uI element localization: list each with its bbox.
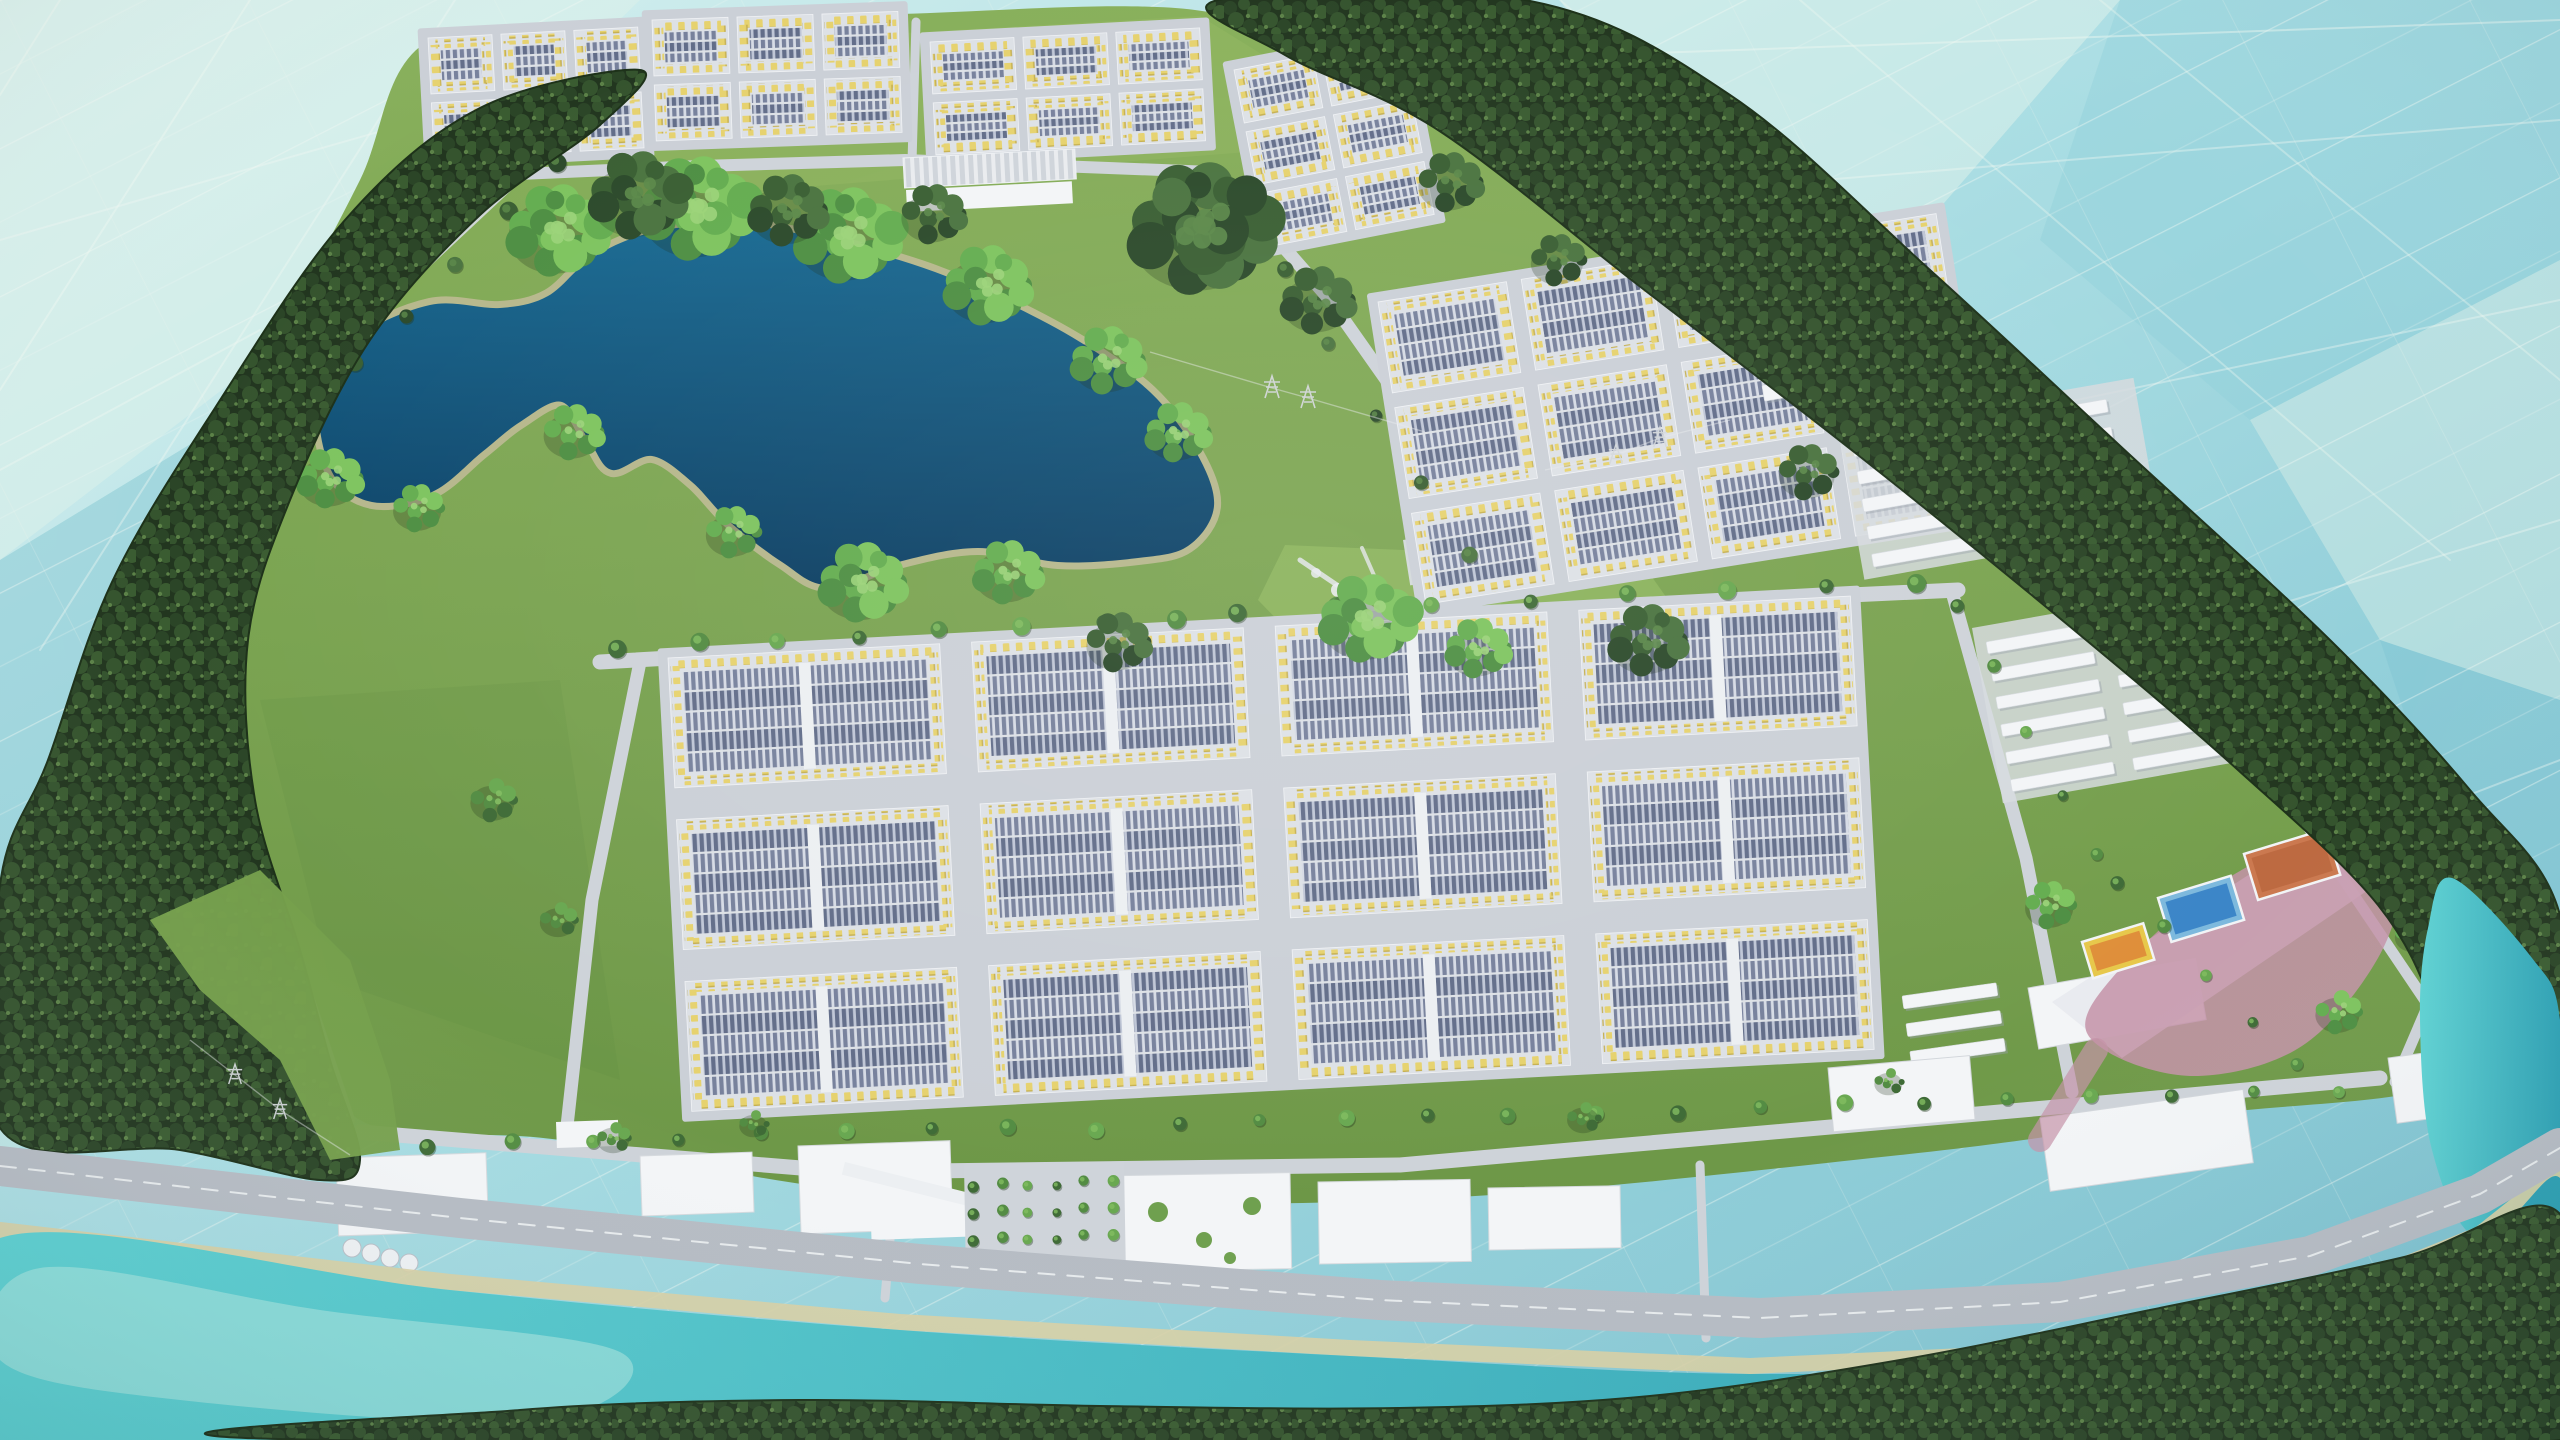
scene-root <box>0 0 2560 1440</box>
aerial-render <box>0 0 2560 1440</box>
atmosphere-vignette <box>0 0 2560 1440</box>
scene-canvas <box>0 0 2560 1440</box>
